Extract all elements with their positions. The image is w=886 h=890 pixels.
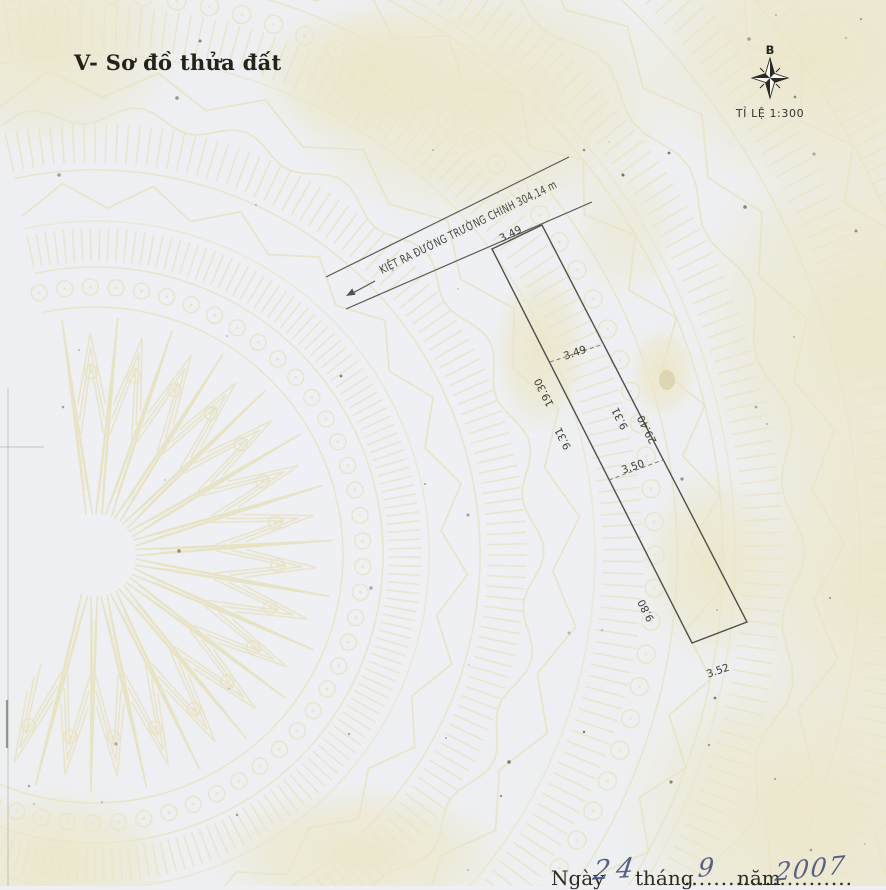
certificate-watermark-pattern xyxy=(0,0,886,886)
month-value-handwritten: 9 xyxy=(697,852,715,883)
day-value-handwritten: 24 xyxy=(591,852,642,887)
page-title: V- Sơ đồ thửa đất xyxy=(74,50,282,75)
date-line: Ngày 24 tháng ............ 9 năm .......… xyxy=(551,856,886,886)
ink-smudge xyxy=(659,370,675,390)
